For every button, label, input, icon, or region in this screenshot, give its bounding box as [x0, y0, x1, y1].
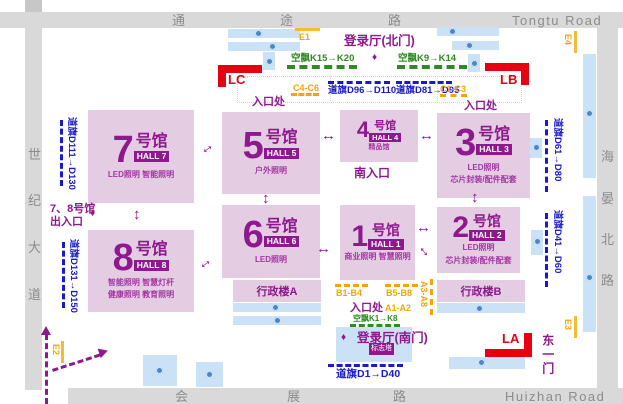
hall-2-box: 2 号馆 HALL 2 LED照明 芯片封装/配件配套: [437, 207, 520, 273]
e1-door-line: [295, 28, 320, 31]
booth-dash-line: [335, 284, 368, 287]
hall-badge: HALL 1: [368, 239, 404, 250]
parking-bar: [449, 357, 525, 369]
flag-route-d1-label: 道旗D1→D40: [336, 369, 400, 380]
hall-8-box: 8 号馆 HALL 8 智能照明 智慧灯杆 健康照明 教育照明: [88, 230, 194, 312]
hall-link-arrow-icon: ↔: [416, 220, 431, 235]
hall-category-line: 芯片封装/配件配套: [450, 175, 516, 185]
road-right-char: 路: [601, 274, 614, 287]
flag-route-d41-label: 道旗D41→D60: [553, 210, 563, 273]
east-gate-label: 东一门: [540, 334, 554, 376]
hall-5-box: 5 号馆 HALL 5 户外照明: [222, 112, 320, 194]
balloon-k9-label: 空飘K9→K14: [398, 54, 456, 64]
hall-unit: 号馆: [374, 120, 396, 132]
parking-marker-icon: [534, 238, 541, 245]
hall-4-box: 4 号馆 HALL 4 精品馆: [340, 110, 418, 162]
parking-marker-icon: [476, 305, 483, 312]
l-point-la-label: LA: [502, 332, 519, 345]
l-point-la-shape: [524, 333, 532, 357]
road-top-char: 路: [388, 14, 401, 27]
south-gate-hall-label: 登录厅(南门): [357, 331, 428, 345]
hall-category-line: 商业照明 智慧照明: [344, 252, 410, 262]
parking-marker-icon: [466, 42, 473, 49]
entrance-label-top-left: 入口处: [252, 96, 285, 109]
route-dashed-line: [45, 334, 48, 404]
hall-3-box: 3 号馆 HALL 3 LED照明 芯片封装/配件配套: [437, 113, 530, 198]
hall-unit: 号馆: [372, 223, 400, 238]
hall-number: 8: [113, 241, 134, 276]
booth-c4-c6-label: C4-C6: [293, 84, 319, 93]
entrance-label-south: 入口处: [350, 302, 383, 315]
l-point-lc-shape: [218, 65, 226, 87]
road-bottom-char: 会: [175, 390, 188, 403]
hall-number: 5: [243, 129, 264, 164]
road-top-char: 途: [280, 14, 293, 27]
hall-badge: HALL 4: [369, 133, 401, 143]
hall-category-line: LED照明: [468, 163, 500, 173]
parking-bar: [583, 196, 596, 332]
hall-number: 6: [243, 218, 264, 253]
flag-dash-line: [328, 364, 403, 367]
hall-link-arrow-icon: ↔: [415, 240, 436, 261]
hall-unit: 号馆: [478, 126, 510, 144]
road-top-char: 通: [172, 14, 185, 27]
parking-marker-icon: [266, 58, 273, 65]
parking-marker-icon: [533, 144, 540, 151]
hall-link-arrow-icon: ↔: [316, 241, 331, 256]
hall-link-arrow-icon: ↔: [194, 252, 215, 273]
l-point-lc-label: LC: [228, 73, 245, 86]
hall-category-line: 精品馆: [369, 143, 390, 152]
balloon-k1-label: 空飘K1→K8: [353, 315, 397, 323]
l-point-lb-shape: [521, 63, 529, 85]
road-crossing: [25, 0, 42, 12]
flag-dash-line: [60, 120, 63, 186]
booth-b5-b8-label: B5-B8: [386, 289, 412, 298]
hall-badge: HALL 5: [264, 148, 300, 159]
gate-diamond-icon: ♦: [372, 53, 377, 63]
gate-diamond-icon: ♦: [341, 333, 346, 343]
balloon-k15-label: 空飘K15→K20: [291, 54, 354, 64]
booth-dash-line: [385, 284, 418, 287]
hall-link-arrow-icon: ↕: [262, 191, 270, 206]
hall-category-line: LED照明: [255, 255, 287, 265]
hall-badge: HALL 7: [134, 151, 170, 162]
entrance-label-top-right: 入口处: [464, 100, 497, 113]
hall-number: 2: [452, 214, 469, 242]
booth-b1-b4-label: B1-B4: [336, 289, 362, 298]
hall-link-arrow-icon: ↔: [419, 128, 434, 143]
road-left-char: 道: [28, 288, 41, 301]
halls78-gate-label: 7、8号馆 出入口: [50, 203, 95, 228]
halls78-gate-line1: 7、8号馆: [50, 203, 95, 215]
road-left-char: 世: [28, 148, 41, 161]
road-left-char: 大: [28, 241, 41, 254]
parking-marker-icon: [156, 367, 163, 374]
booth-a3-a8-label: A3-A8: [419, 281, 428, 307]
hall-number: 4: [357, 120, 369, 140]
flag-route-d131-label: 道旗D131→D150: [69, 239, 79, 313]
balloon-dash-line: [350, 324, 400, 327]
e1-label: E1: [299, 33, 310, 42]
parking-marker-icon: [269, 43, 276, 50]
route-arrowhead-right-icon: [98, 346, 110, 358]
hall-7-box: 7 号馆 HALL 7 LED照明 智能照明: [88, 110, 194, 203]
parking-marker-icon: [449, 28, 456, 35]
flag-dash-line: [545, 120, 548, 192]
hall-unit: 号馆: [266, 218, 298, 236]
hall-category-line: LED照明: [463, 243, 495, 253]
road-left-char: 纪: [28, 194, 41, 207]
hall-link-arrow-icon: ↔: [196, 137, 217, 158]
hall-unit: 号馆: [473, 214, 501, 229]
balloon-dash-line: [287, 65, 357, 69]
booth-a1-a2-label: A1-A2: [385, 304, 411, 313]
parking-marker-icon: [478, 359, 485, 366]
hall-badge: HALL 2: [469, 230, 505, 241]
parking-marker-icon: [471, 60, 478, 67]
flag-dash-line: [328, 81, 390, 84]
hall-1-box: 1 号馆 HALL 1 商业照明 智慧照明: [340, 205, 415, 280]
hall-number: 7: [113, 133, 134, 168]
route-dashed-line: [52, 354, 100, 372]
flag-route-d61-label: 道旗D61→D80: [553, 118, 563, 181]
road-bottom-char: 展: [287, 390, 300, 403]
hall-6-box: 6 号馆 HALL 6 LED照明: [222, 205, 320, 278]
hall-unit: 号馆: [136, 241, 168, 259]
halls78-gate-line2: 出入口: [50, 216, 83, 228]
road-bottom-name-en: Huizhan Road: [505, 390, 605, 403]
hall-category-line: 户外照明: [255, 166, 287, 176]
balloon-dash-line: [397, 65, 467, 69]
hall-badge: HALL 3: [476, 144, 512, 155]
e4-door-line: [574, 31, 577, 53]
e2-label: E2: [51, 344, 60, 355]
road-bottom-char: 路: [393, 390, 406, 403]
parking-marker-icon: [274, 317, 281, 324]
hall-link-arrow-icon: ↕: [471, 190, 479, 205]
e3-label: E3: [563, 319, 572, 330]
south-entrance-hall4-label: 南入口: [354, 167, 390, 181]
exhibition-center-map: 通 途 路 Tongtu Road 会 展 路 Huizhan Road 世 纪…: [0, 0, 623, 404]
hall-title: 7 号馆 HALL 7: [113, 133, 170, 168]
hall-number: 3: [455, 126, 476, 161]
hall-category-line: 智能照明 智慧灯杆: [108, 278, 174, 288]
parking-marker-icon: [586, 274, 593, 281]
route-arrowhead-up-icon: [41, 326, 51, 335]
admin-building-b: 行政楼B: [437, 280, 525, 302]
road-right-char: 海: [601, 150, 614, 163]
flag-route-d96-label: 道旗D96→D110: [328, 86, 396, 96]
flag-dash-line: [62, 242, 65, 308]
e2-door-line: [61, 341, 64, 363]
hall-badge: HALL 6: [264, 236, 300, 247]
road-top-name-en: Tongtu Road: [512, 14, 602, 27]
hall-link-arrow-icon: ↔: [321, 128, 336, 143]
road-right-char: 北: [601, 233, 614, 246]
north-gate-hall-label: 登录厅(北门): [344, 34, 415, 48]
hall-category-line: LED照明 智能照明: [108, 170, 174, 180]
e4-label: E4: [563, 34, 572, 45]
booth-dash-line: [291, 93, 319, 96]
flag-dash-line: [545, 213, 548, 287]
admin-building-a: 行政楼A: [233, 280, 321, 302]
flag-route-d111-label: 道旗D111→D130: [67, 117, 77, 190]
parking-bar: [228, 29, 300, 38]
booth-dash-line: [440, 94, 467, 97]
hall-badge: HALL 8: [134, 260, 170, 271]
l-point-lb-label: LB: [500, 73, 517, 86]
e3-door-line: [574, 316, 577, 338]
hall-number: 1: [351, 223, 368, 251]
parking-marker-icon: [255, 30, 262, 37]
hall-category-line: 健康照明 教育照明: [108, 290, 174, 300]
parking-marker-icon: [272, 304, 279, 311]
booth-dash-line: [430, 279, 433, 315]
road-right-char: 晏: [601, 192, 614, 205]
parking-marker-icon: [586, 110, 593, 117]
gate-diamond-icon: ♦: [90, 209, 95, 219]
hall-link-arrow-icon: ↕: [133, 207, 141, 222]
booth-c1-c3-label: C1-C3: [440, 85, 466, 94]
hall-category-line: 芯片封装/配件配套: [445, 256, 511, 266]
parking-bar: [452, 41, 499, 50]
hall-unit: 号馆: [266, 129, 298, 147]
parking-marker-icon: [206, 371, 213, 378]
parking-bar: [228, 42, 300, 51]
hall-unit: 号馆: [136, 133, 168, 151]
parking-bar: [437, 27, 499, 36]
